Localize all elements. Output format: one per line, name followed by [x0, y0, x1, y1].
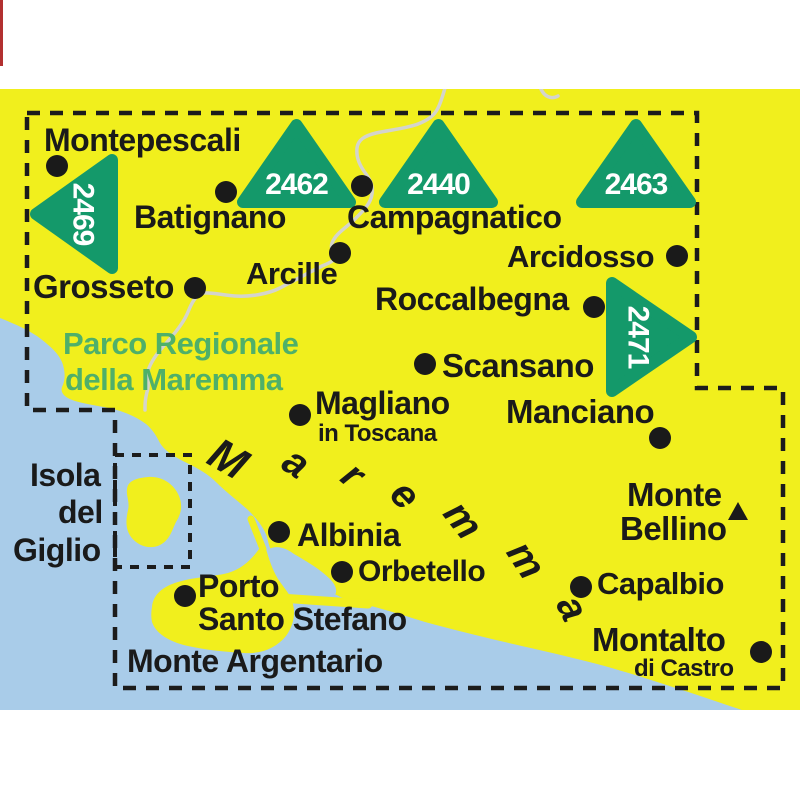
town-sublabel-montalto: di Castro: [634, 655, 734, 682]
town-label-montepescali: Montepescali: [44, 122, 241, 158]
town-sublabel-porto-santo-stefano: Santo Stefano: [198, 601, 407, 637]
sheet-number-2469: 2469: [67, 183, 100, 246]
town-label-orbetello: Orbetello: [358, 555, 485, 588]
town-label-grosseto: Grosseto: [33, 268, 174, 305]
town-dot-manciano: [649, 427, 671, 449]
town-dot-grosseto: [184, 277, 206, 299]
town-dot-porto-santo-stefano: [174, 585, 196, 607]
town-label-scansano: Scansano: [442, 347, 594, 384]
town-label-monte-bellino: Monte: [627, 476, 722, 513]
town-dot-campagnatico: [351, 175, 373, 197]
town-label-arcidosso: Arcidosso: [507, 239, 654, 274]
town-dot-capalbio: [570, 576, 592, 598]
town-label-capalbio: Capalbio: [597, 566, 724, 601]
town-label-albinia: Albinia: [297, 517, 401, 553]
town-dot-scansano: [414, 353, 436, 375]
sheet-number-2440: 2440: [407, 168, 470, 201]
town-label-arcille: Arcille: [246, 256, 338, 291]
town-label-roccalbegna: Roccalbegna: [375, 281, 569, 317]
island-label-line-1: Isola: [30, 457, 101, 493]
town-label-montalto: Montalto: [592, 621, 725, 658]
town-dot-montepescali: [46, 155, 68, 177]
park-label-line-2: della Maremma: [65, 362, 284, 397]
town-label-manciano: Manciano: [506, 393, 654, 430]
town-dot-magliano: [289, 404, 311, 426]
map-page: 24692462244024632471 Parco Regionaledell…: [0, 0, 800, 800]
town-label-campagnatico: Campagnatico: [347, 199, 561, 235]
sheet-number-2463: 2463: [605, 168, 668, 201]
town-label-porto-santo-stefano: Porto: [198, 568, 279, 604]
park-label-line-1: Parco Regionale: [63, 326, 299, 361]
town-monte-argentario: Monte Argentario: [127, 643, 383, 679]
island-label-line-3: Giglio: [13, 532, 101, 568]
sheet-number-2471: 2471: [622, 306, 655, 369]
town-label-monte-argentario: Monte Argentario: [127, 643, 383, 679]
sheet-number-2462: 2462: [265, 168, 328, 201]
town-label-batignano: Batignano: [134, 199, 286, 235]
town-dot-roccalbegna: [583, 296, 605, 318]
town-sublabel-magliano: in Toscana: [318, 420, 438, 447]
town-label-magliano: Magliano: [315, 385, 450, 421]
maremma-map-overview: 24692462244024632471 Parco Regionaledell…: [0, 0, 800, 800]
town-dot-montalto: [750, 641, 772, 663]
town-dot-arcidosso: [666, 245, 688, 267]
island-label-line-2: del: [58, 494, 103, 530]
town-dot-albinia: [268, 521, 290, 543]
bottom-white-band: [0, 710, 800, 800]
town-sublabel-monte-bellino: Bellino: [620, 510, 727, 547]
town-dot-orbetello: [331, 561, 353, 583]
top-white-band: [0, 0, 800, 89]
red-edge-strip: [0, 0, 3, 66]
